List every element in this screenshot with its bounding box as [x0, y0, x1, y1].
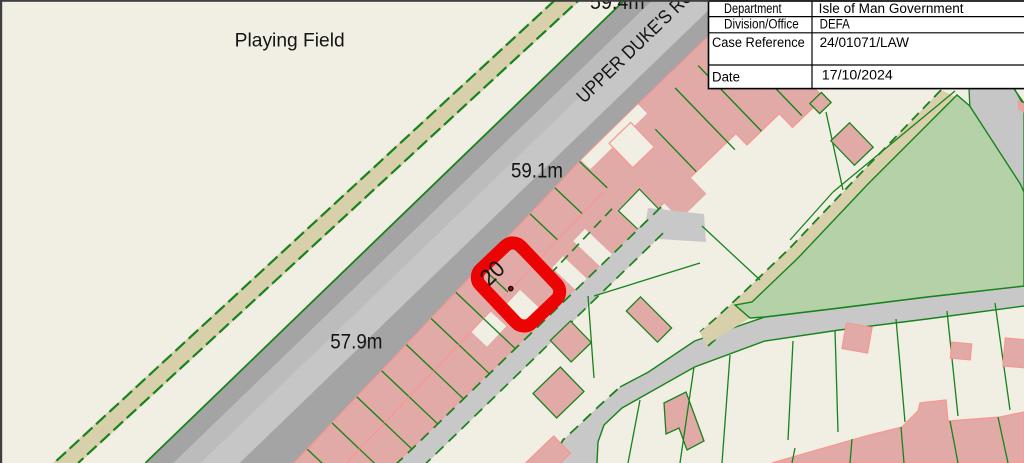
svg-text:Case Reference: Case Reference	[712, 35, 805, 50]
svg-text:Department: Department	[724, 1, 782, 16]
svg-text:59.1m: 59.1m	[511, 159, 563, 182]
svg-text:24/01071/LAW: 24/01071/LAW	[820, 35, 910, 50]
svg-text:59.4m: 59.4m	[590, 0, 645, 14]
svg-text:Playing Field: Playing Field	[235, 30, 345, 51]
svg-text:57.9m: 57.9m	[330, 331, 382, 354]
svg-text:17/10/2024: 17/10/2024	[822, 68, 894, 83]
svg-text:Isle of Man Government: Isle of Man Government	[819, 1, 964, 16]
svg-text:Date: Date	[712, 69, 740, 84]
svg-text:Division/Office: Division/Office	[724, 17, 799, 32]
svg-text:DEFA: DEFA	[820, 17, 850, 32]
